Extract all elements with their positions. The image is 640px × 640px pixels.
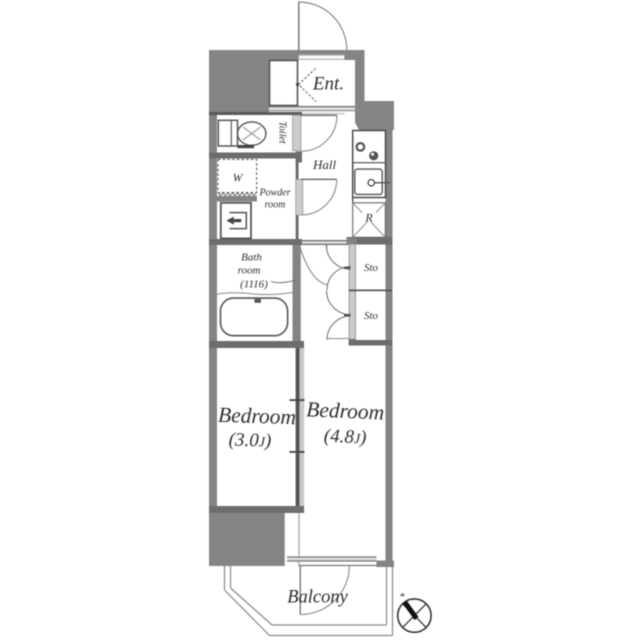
svg-text:*: * [399,591,405,603]
svg-text:R: R [364,211,373,225]
svg-text:Bedroom: Bedroom [306,397,385,424]
svg-text:(3.0J): (3.0J) [228,429,271,451]
svg-text:room: room [238,265,261,277]
svg-text:Balcony: Balcony [287,588,348,608]
svg-text:Bedroom: Bedroom [218,403,297,429]
svg-text:W: W [233,173,244,185]
svg-text:Ent.: Ent. [312,74,344,95]
svg-text:Toilet: Toilet [277,121,288,144]
svg-text:(1116): (1116) [240,279,268,291]
svg-text:(4.8J): (4.8J) [323,426,367,449]
svg-text:Powder: Powder [258,188,290,199]
svg-text:Hall: Hall [312,157,337,172]
svg-text:room: room [265,200,286,211]
svg-text:Bath: Bath [241,252,262,264]
